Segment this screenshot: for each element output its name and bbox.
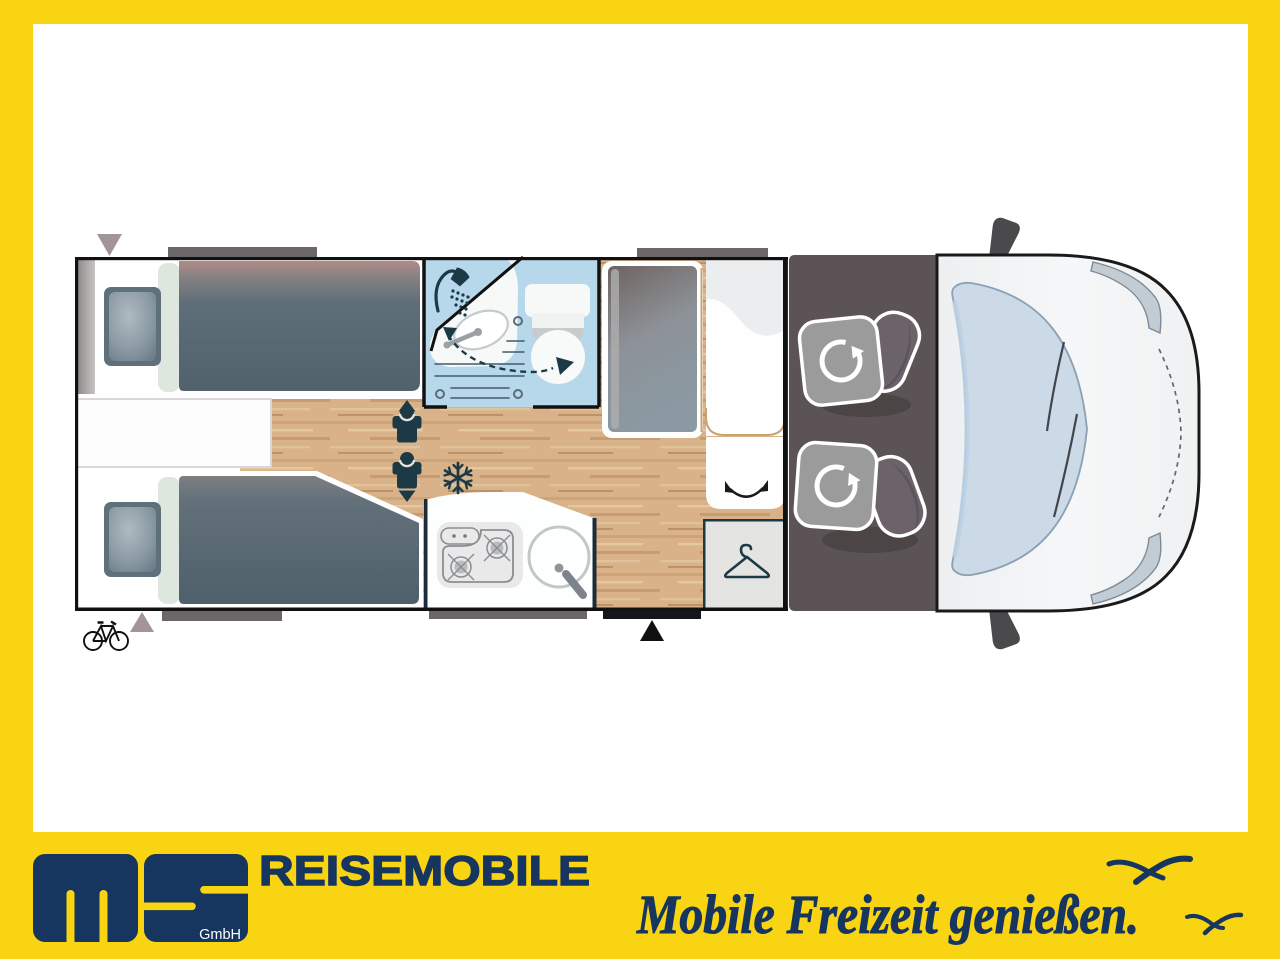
svg-text:GmbH: GmbH: [199, 927, 241, 943]
svg-text:Mobile Freizeit genießen.: Mobile Freizeit genießen.: [636, 884, 1139, 945]
svg-text:REISEMOBILE: REISEMOBILE: [259, 847, 590, 894]
